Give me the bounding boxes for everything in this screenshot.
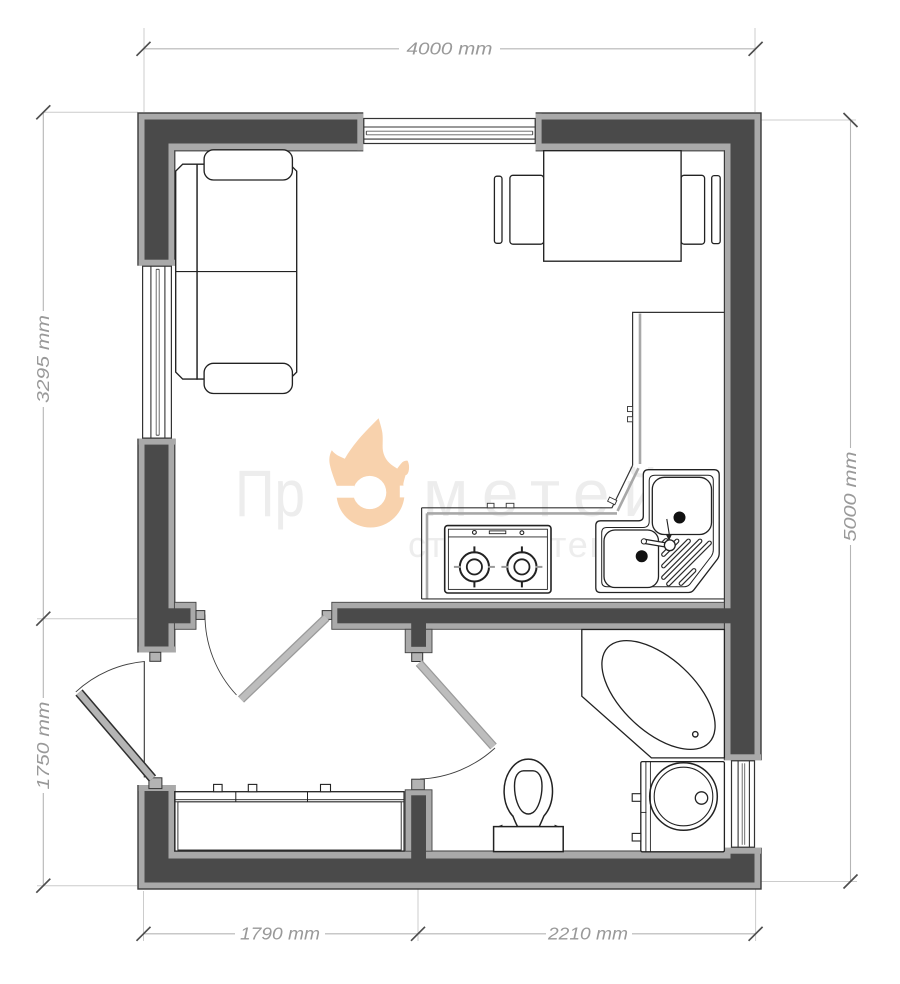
svg-text:5000 mm: 5000 mm <box>840 452 860 542</box>
svg-text:4000 mm: 4000 mm <box>407 39 493 59</box>
svg-text:2210 mm: 2210 mm <box>547 924 628 944</box>
svg-text:метей: метей <box>423 456 660 530</box>
svg-text:1790 mm: 1790 mm <box>240 924 320 944</box>
svg-text:3295 mm: 3295 mm <box>33 315 53 403</box>
svg-text:Пр: Пр <box>235 456 305 530</box>
svg-text:1750 mm: 1750 mm <box>33 702 53 790</box>
